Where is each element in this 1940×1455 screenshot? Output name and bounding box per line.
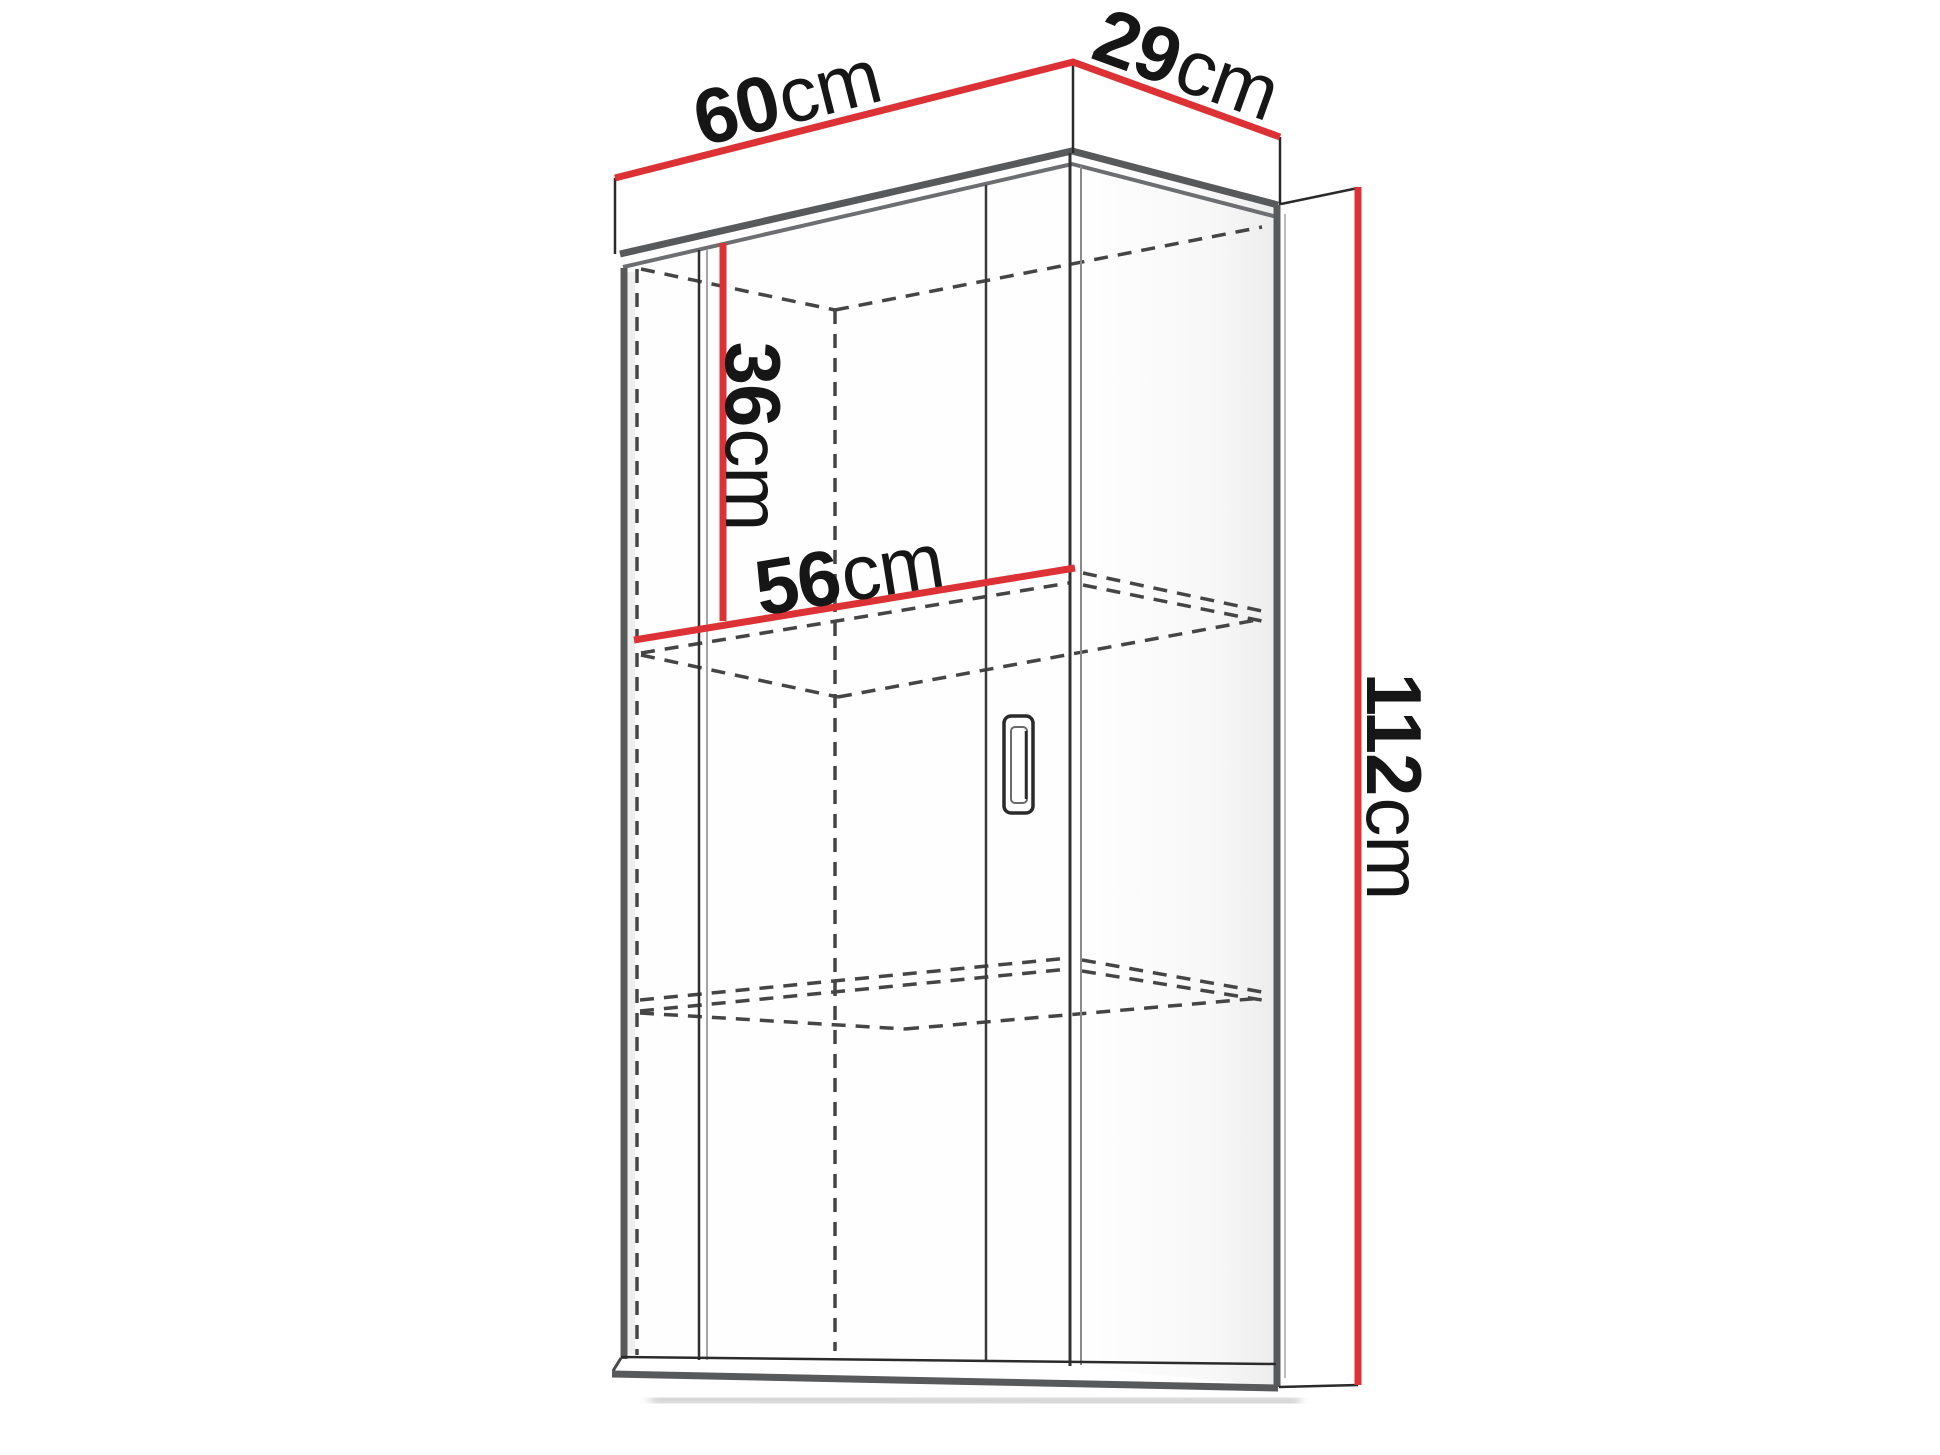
upper-section-dimension-label: 36cm — [709, 342, 797, 531]
floor-shadow — [650, 1399, 1300, 1402]
cabinet-dimension-diagram: 60cm 29cm 112cm 36cm 56cm — [0, 0, 1940, 1455]
height-extension-bottom — [1279, 1385, 1358, 1387]
diagram-canvas: 60cm 29cm 112cm 36cm 56cm — [0, 0, 1940, 1455]
cabinet-faces — [615, 62, 1280, 1387]
side-face — [1070, 153, 1277, 1387]
bottom-left-step-edge — [613, 1358, 621, 1371]
height-dimension-label: 112cm — [1350, 673, 1438, 900]
height-extension-top — [1281, 188, 1358, 204]
